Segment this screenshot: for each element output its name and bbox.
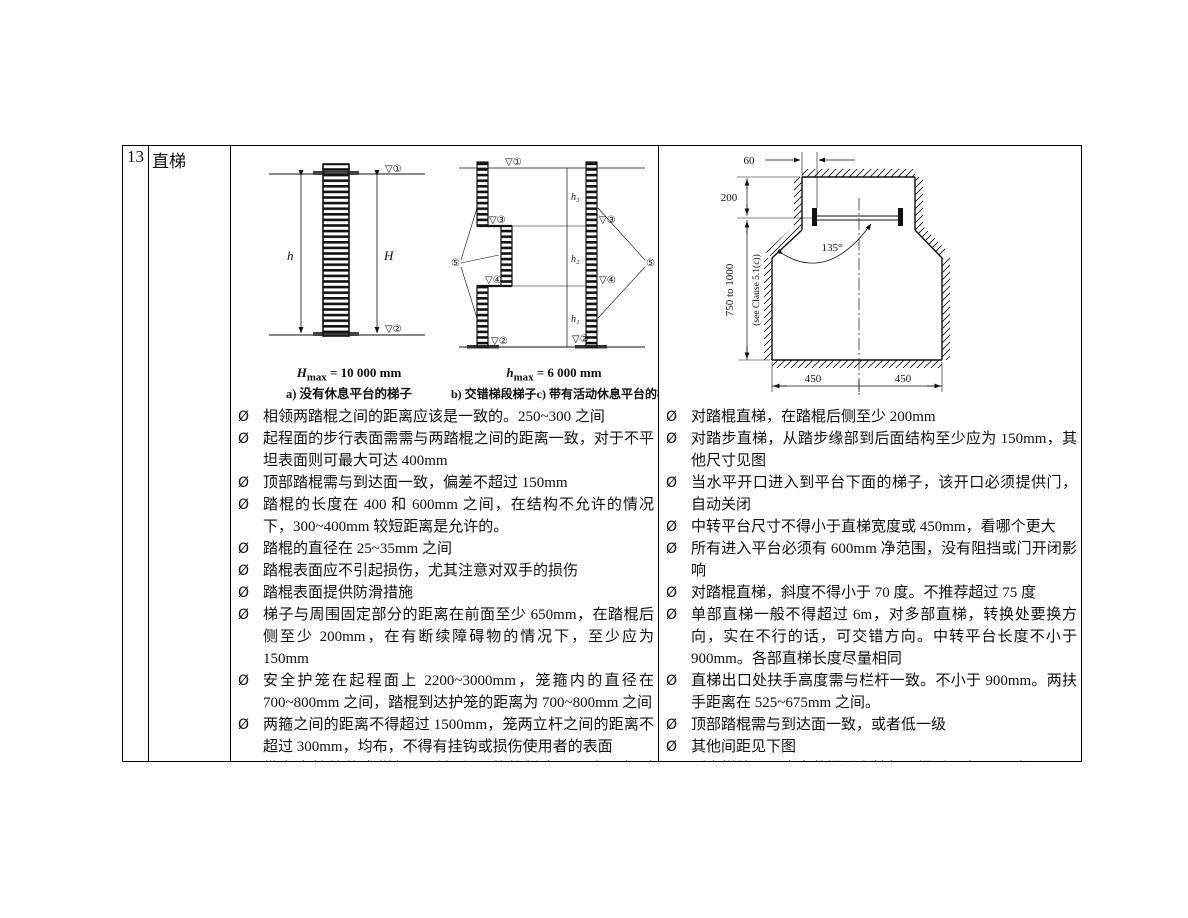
figure-b-caption: b) 交错梯段梯子	[451, 386, 537, 403]
list-item: Ø安全护笼在起程面上 2200~3000mm，笼箍内的直径在 700~800mm…	[238, 670, 654, 714]
bc-marker-right-bottom: ▽②	[572, 334, 589, 345]
page: { "table": { "row_number": "13", "catego…	[0, 0, 1188, 918]
bullet-marker-icon: Ø	[238, 582, 263, 604]
list-item: Ø到直梯处入口应安装门后者挡杆，门后平台 1.5m 长，无需踢脚	[666, 758, 1077, 761]
category-cell: 直梯	[149, 146, 231, 761]
list-item: Ø中转平台尺寸不得小于直梯宽度或 450mm，看哪个更大	[666, 516, 1077, 538]
level-marker-2: ▽②	[385, 324, 402, 335]
list-item: Ø对踏棍直梯，在踏棍后侧至少 200mm	[666, 406, 1077, 428]
ladder-icon	[323, 164, 349, 336]
left-figures-area: h H ▽① ▽② Hmax = 10 000 mm a) 没有休息平台的梯子	[231, 146, 658, 404]
dim-200: 200	[721, 192, 738, 204]
bc-marker-left-bottom: ▽②	[491, 336, 508, 347]
bc-marker-top: ▽①	[505, 157, 522, 168]
list-item: Ø两箍之间的距离不得超过 1500mm，笼两立杆之间的距离不超过 300mm，均…	[238, 714, 654, 758]
bullet-marker-icon: Ø	[666, 670, 691, 714]
dim-450-right: 450	[895, 373, 912, 385]
list-item: Ø所有进入平台必须有 600mm 净范围，没有阻挡或门开闭影响	[666, 538, 1077, 582]
bullet-marker-icon: Ø	[238, 494, 263, 538]
figure-opening: 60 200 750 to 1000 (see Clause 5.1(c))	[687, 150, 1022, 404]
spec-table-row: 13 直梯	[122, 145, 1082, 762]
list-item: Ø相领两踏棍之间的距离应该是一致的。250~300 之间	[238, 406, 654, 428]
bullet-marker-icon: Ø	[238, 604, 263, 670]
rung-end-left	[812, 208, 817, 226]
dim-clause-note: (see Clause 5.1(c))	[751, 254, 762, 325]
dim-750-1000: 750 to 1000	[724, 263, 736, 316]
list-item: Ø踏棍表面提供防滑措施	[238, 582, 654, 604]
figure-a-caption: a) 没有休息平台的梯子	[261, 386, 437, 403]
figure-a: h H ▽① ▽② Hmax = 10 000 mm a) 没有休息平台的梯子	[261, 150, 437, 403]
ladder-continuous-icon	[586, 162, 597, 347]
row-number-cell: 13	[123, 146, 149, 761]
bullet-marker-icon: Ø	[238, 538, 263, 560]
dim-450-left: 450	[805, 373, 822, 385]
list-item: Ø踏棍的直径在 25~35mm 之间	[238, 538, 654, 560]
bullet-marker-icon: Ø	[666, 428, 691, 472]
list-item: Ø顶部踏棍需与到达面一致，或者低一级	[666, 714, 1077, 736]
bullet-marker-icon: Ø	[666, 472, 691, 516]
list-item: Ø起程面的步行表面需需与两踏棍之间的距离一致，对于不平坦表面则可最大可达 400…	[238, 428, 654, 472]
bullet-marker-icon: Ø	[238, 758, 263, 761]
list-item: Ø当水平开口进入到平台下面的梯子，该开口必须提供门，自动关闭	[666, 472, 1077, 516]
bullet-marker-icon: Ø	[666, 406, 691, 428]
seg-h3-label: h₃	[571, 192, 580, 203]
list-item: Ø单部直梯一般不得超过 6m，对多部直梯，转换处要换方向，实在不行的话，可交错方…	[666, 604, 1077, 670]
bc-marker-left-1: ▽③	[489, 215, 506, 226]
category-label: 直梯	[152, 152, 186, 171]
seg-h2-label: h₂	[571, 254, 580, 265]
list-item: Ø踏棍表面应不引起损伤，尤其注意对双手的损伤	[238, 560, 654, 582]
figure-a-formula: Hmax = 10 000 mm	[261, 365, 437, 386]
bc-marker-right-1: ▽③	[599, 215, 616, 226]
list-item: Ø带安全护笼的直梯如果到起程面的护栏水平距离不超过 1.5m，则	[238, 758, 654, 761]
bc-marker-left-2: ▽④	[485, 275, 502, 286]
right-bullet-list: Ø对踏棍直梯，在踏棍后侧至少 200mm Ø对踏步直梯，从踏步缘部到后面结构至少…	[659, 404, 1081, 761]
list-item: Ø直梯出口处扶手高度需与栏杆一致。不小于 900mm。两扶手距离在 525~67…	[666, 670, 1077, 714]
list-item: Ø其他间距见下图	[666, 736, 1077, 758]
ladder-flight-1-icon	[477, 162, 488, 226]
dim-h-label: h	[287, 248, 294, 263]
ladder-flight-2-icon	[501, 226, 512, 286]
bullet-marker-icon: Ø	[238, 560, 263, 582]
bullet-marker-icon: Ø	[666, 604, 691, 670]
list-item: Ø踏棍的长度在 400 和 600mm 之间，在结构不允许的情况下，300~40…	[238, 494, 654, 538]
bullet-marker-icon: Ø	[238, 714, 263, 758]
figure-bc-formula: hmax = 6 000 mm	[449, 365, 658, 386]
list-item: Ø对踏步直梯，从踏步缘部到后面结构至少应为 150mm，其他尺寸见图	[666, 428, 1077, 472]
bullet-marker-icon: Ø	[666, 516, 691, 538]
bc-callout-left: ⑤	[451, 258, 460, 269]
right-figures-area: 60 200 750 to 1000 (see Clause 5.1(c))	[659, 146, 1081, 404]
left-content-cell: h H ▽① ▽② Hmax = 10 000 mm a) 没有休息平台的梯子	[231, 146, 659, 761]
seg-h1-label: h₁	[571, 314, 579, 325]
dim-H-label: H	[383, 248, 394, 263]
angle-135: 135°	[822, 242, 843, 254]
right-content-cell: 60 200 750 to 1000 (see Clause 5.1(c))	[659, 146, 1081, 761]
list-item: Ø顶部踏棍需与到达面一致，偏差不超过 150mm	[238, 472, 654, 494]
bullet-marker-icon: Ø	[666, 758, 691, 761]
bullet-marker-icon: Ø	[238, 670, 263, 714]
bullet-marker-icon: Ø	[238, 472, 263, 494]
rung-end-right	[898, 208, 903, 226]
figure-bc-diagram: h₃ h₂ h₁ ▽① ▽③ ▽④ ▽② ▽③ ▽④ ▽② ⑤ ⑤	[449, 150, 658, 360]
bullet-marker-icon: Ø	[666, 736, 691, 758]
list-item: Ø对踏棍直梯，斜度不得小于 70 度。不推荐超过 75 度	[666, 582, 1077, 604]
figure-opening-diagram: 60 200 750 to 1000 (see Clause 5.1(c))	[687, 150, 1022, 400]
bullet-marker-icon: Ø	[666, 538, 691, 582]
bullet-marker-icon: Ø	[666, 582, 691, 604]
figure-a-diagram: h H ▽① ▽②	[261, 150, 437, 360]
list-item: Ø梯子与周围固定部分的距离在前面至少 650mm，在踏棍后侧至少 200mm，在…	[238, 604, 654, 670]
row-number: 13	[127, 147, 144, 166]
level-marker-1: ▽①	[385, 164, 402, 175]
bc-callout-right: ⑤	[646, 258, 655, 269]
bc-marker-right-2: ▽④	[599, 275, 616, 286]
bullet-marker-icon: Ø	[238, 406, 263, 428]
figure-bc: h₃ h₂ h₁ ▽① ▽③ ▽④ ▽② ▽③ ▽④ ▽② ⑤ ⑤	[449, 150, 658, 403]
figure-c-caption: c) 带有活动休息平台的梯子	[537, 386, 658, 403]
left-bullet-list: Ø相领两踏棍之间的距离应该是一致的。250~300 之间 Ø起程面的步行表面需需…	[231, 404, 658, 761]
bullet-marker-icon: Ø	[238, 428, 263, 472]
dim-60: 60	[744, 155, 756, 167]
ladder-flight-3-icon	[477, 286, 488, 347]
bullet-marker-icon: Ø	[666, 714, 691, 736]
